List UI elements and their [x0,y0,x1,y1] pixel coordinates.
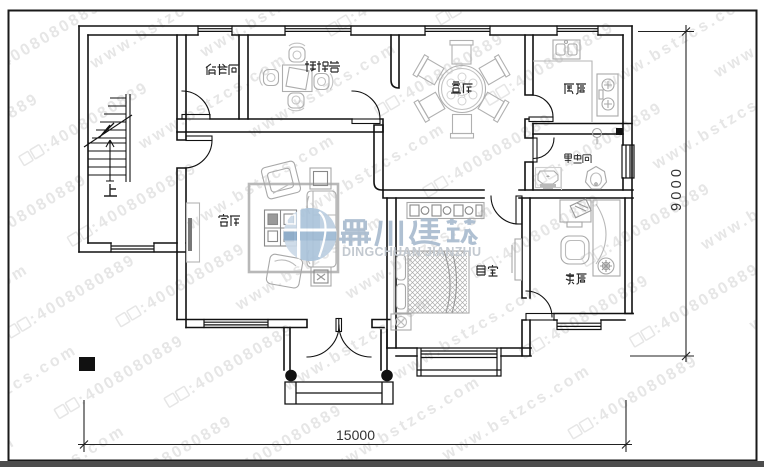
svg-text:15000: 15000 [336,427,375,443]
svg-text:DINGCHUAN JIANZHU: DINGCHUAN JIANZHU [342,245,481,259]
